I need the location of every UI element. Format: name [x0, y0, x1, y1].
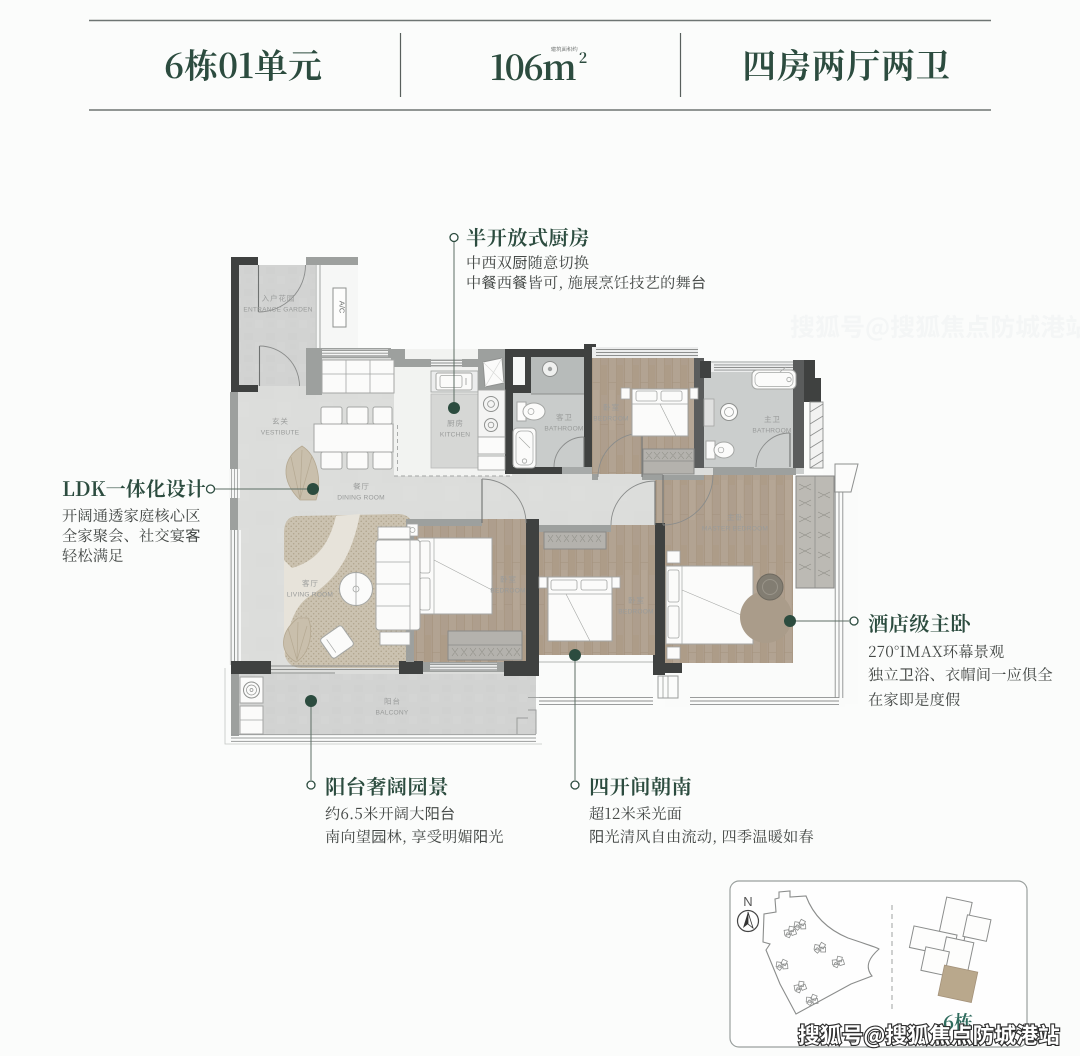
svg-text:KITCHEN: KITCHEN	[440, 432, 470, 439]
svg-text:BEDROOM: BEDROOM	[618, 609, 653, 616]
svg-text:ENTRANCE GARDEN: ENTRANCE GARDEN	[243, 307, 312, 314]
svg-text:VESTIBUTE: VESTIBUTE	[261, 430, 300, 437]
svg-text:BEDROOM: BEDROOM	[490, 588, 525, 595]
svg-text:MASTER BEDROOM: MASTER BEDROOM	[702, 526, 768, 533]
svg-text:BATHROOM: BATHROOM	[752, 428, 791, 435]
svg-text:BEDROOM: BEDROOM	[593, 416, 628, 423]
svg-text:LIVING ROOM: LIVING ROOM	[287, 592, 333, 599]
svg-text:A/C: A/C	[338, 301, 347, 314]
svg-text:N: N	[743, 894, 752, 909]
svg-text:BATHROOM: BATHROOM	[544, 426, 583, 433]
svg-text:DINING ROOM: DINING ROOM	[337, 495, 385, 502]
svg-text:BALCONY: BALCONY	[376, 710, 409, 717]
